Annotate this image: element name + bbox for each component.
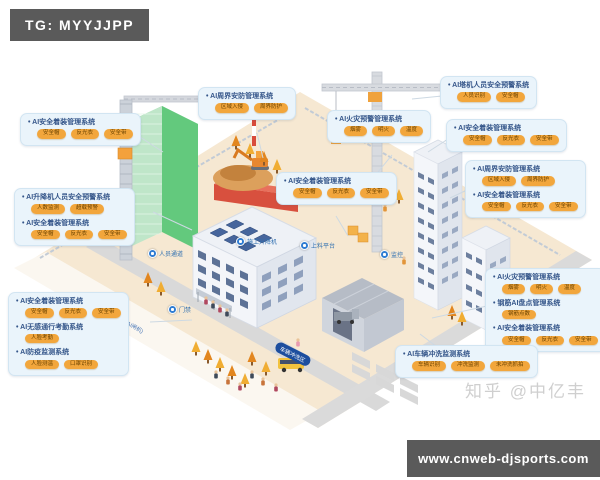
system-item: AI周界安防管理系统 区域入侵 周界防护	[473, 164, 578, 186]
feature-tag: 安全帽	[37, 129, 66, 139]
site-marker: 人员通道	[148, 249, 183, 258]
callout-box: AI周界安防管理系统 区域入侵 周界防护 AI安全着装管理系统 安全帽 反光衣 …	[465, 160, 586, 218]
system-item: AI安全着装管理系统 安全帽 反光衣 安全带	[473, 190, 578, 212]
site-marker: 施工升降机	[236, 237, 277, 246]
site-marker: 监控	[380, 250, 403, 259]
system-item: AI安全着装管理系统 安全帽 反光衣 安全带	[284, 176, 389, 198]
system-item: AI火灾预警管理系统 烟雾 明火 温度	[493, 272, 598, 294]
callout-box: AI安全着装管理系统 安全帽 反光衣 安全带	[20, 113, 141, 146]
marker-label: 人员通道	[159, 249, 183, 258]
feature-tag: 安全带	[530, 135, 559, 145]
feature-tag: 人脸测温	[25, 360, 59, 370]
feature-tag: 反光衣	[327, 188, 356, 198]
feature-tag: 安全帽	[463, 135, 492, 145]
marker-label: 监控	[391, 250, 403, 259]
system-title: AI周界安防管理系统	[473, 164, 578, 175]
callout-box: AI塔机人员安全预警系统 人员识别 安全帽	[440, 76, 537, 109]
system-title: AI安全着装管理系统	[22, 218, 127, 229]
marker-label: 施工升降机	[247, 237, 277, 246]
feature-tag: 反光衣	[65, 230, 94, 240]
feature-tag: 安全带	[104, 129, 133, 139]
system-title: AI无感通行考勤系统	[16, 322, 121, 333]
system-item: AI防疫监测系统 人脸测温 口罩识别	[16, 347, 121, 369]
feature-tag: 车辆识别	[412, 361, 446, 371]
feature-tag: 冲洗监测	[451, 361, 485, 371]
system-title: AI安全着装管理系统	[28, 117, 133, 128]
feature-tag: 反光衣	[536, 336, 565, 346]
feature-tag: 钢筋点数	[502, 310, 536, 320]
callout-box: AI安全着装管理系统 安全帽 反光衣 安全带	[446, 119, 567, 152]
marker-label: 门禁	[179, 305, 191, 314]
feature-tag: 安全带	[92, 308, 121, 318]
system-title: AI防疫监测系统	[16, 347, 121, 358]
footer-url-bar: www.cnweb-djsports.com	[407, 440, 600, 477]
feature-tag: 安全带	[569, 336, 598, 346]
system-title: AI安全着装管理系统	[473, 190, 578, 201]
feature-tag: 反光衣	[497, 135, 526, 145]
site-marker: 上料平台	[300, 241, 335, 250]
feature-tag: 安全带	[549, 202, 578, 212]
system-item: AI周界安防管理系统 区域入侵 周界防护	[206, 91, 288, 113]
feature-tag: 周界防护	[521, 176, 555, 186]
system-title: 钢筋AI盘点管理系统	[493, 298, 598, 309]
feature-tag: 安全帽	[31, 230, 60, 240]
feature-tag: 安全帽	[482, 202, 511, 212]
system-title: AI安全着装管理系统	[16, 296, 121, 307]
camera-marker-icon	[300, 241, 309, 250]
feature-tag: 反光衣	[71, 129, 100, 139]
system-item: AI无感通行考勤系统 人脸考勤	[16, 322, 121, 344]
system-item: AI塔机人员安全预警系统 人员识别 安全帽	[448, 80, 529, 102]
system-item: AI安全着装管理系统 安全帽 反光衣 安全带	[454, 123, 559, 145]
feature-tag: 超载预警	[70, 204, 104, 214]
callout-box: AI火灾预警管理系统 烟雾 明火 温度	[327, 110, 431, 143]
feature-tag: 反光衣	[59, 308, 88, 318]
callout-box: AI车辆冲洗监测系统 车辆识别 冲洗监测 未冲洗抓拍	[395, 345, 538, 378]
feature-tag: 明火	[372, 126, 395, 136]
system-title: AI升降机人员安全预警系统	[22, 192, 127, 203]
feature-tag: 反光衣	[516, 202, 545, 212]
system-title: AI周界安防管理系统	[206, 91, 288, 102]
site-marker: 门禁	[168, 305, 191, 314]
feature-tag: 区域入侵	[482, 176, 516, 186]
callout-box: AI升降机人员安全预警系统 人数监测 超载预警 AI安全着装管理系统 安全帽 反…	[14, 188, 135, 246]
watermark: 知乎 @中亿丰	[465, 377, 586, 402]
system-title: AI火灾预警管理系统	[335, 114, 423, 125]
camera-marker-icon	[380, 250, 389, 259]
feature-tag: 明火	[530, 284, 553, 294]
brand-badge: TG: MYYJJPP	[10, 9, 149, 41]
system-title: AI火灾预警管理系统	[493, 272, 598, 283]
system-item: 钢筋AI盘点管理系统 钢筋点数	[493, 298, 598, 320]
camera-marker-icon	[148, 249, 157, 258]
system-item: AI车辆冲洗监测系统 车辆识别 冲洗监测 未冲洗抓拍	[403, 349, 530, 371]
marker-label: 上料平台	[311, 241, 335, 250]
feature-tag: 温度	[400, 126, 423, 136]
feature-tag: 人员识别	[457, 92, 491, 102]
callout-box: AI安全着装管理系统 安全帽 反光衣 安全带 AI无感通行考勤系统 人脸考勤 A…	[8, 292, 129, 376]
feature-tag: 未冲洗抓拍	[490, 361, 530, 371]
feature-tag: 安全帽	[293, 188, 322, 198]
system-item: AI升降机人员安全预警系统 人数监测 超载预警	[22, 192, 127, 214]
feature-tag: 人数监测	[31, 204, 65, 214]
feature-tag: 安全帽	[25, 308, 54, 318]
callout-box: AI周界安防管理系统 区域入侵 周界防护	[198, 87, 296, 120]
system-item: AI火灾预警管理系统 烟雾 明火 温度	[335, 114, 423, 136]
page: TG: MYYJJPP	[0, 0, 600, 480]
camera-marker-icon	[168, 305, 177, 314]
feature-tag: 口罩识别	[64, 360, 98, 370]
callout-box: AI安全着装管理系统 安全帽 反光衣 安全带	[276, 172, 397, 205]
feature-tag: 烟雾	[502, 284, 525, 294]
system-title: AI塔机人员安全预警系统	[448, 80, 529, 91]
feature-tag: 安全带	[360, 188, 389, 198]
system-title: AI安全着装管理系统	[284, 176, 389, 187]
camera-marker-icon	[236, 237, 245, 246]
system-title: AI车辆冲洗监测系统	[403, 349, 530, 360]
feature-tag: 周界防护	[254, 103, 288, 113]
system-item: AI安全着装管理系统 安全帽 反光衣 安全带	[16, 296, 121, 318]
feature-tag: 温度	[558, 284, 581, 294]
feature-tag: 人脸考勤	[25, 334, 59, 344]
feature-tag: 区域入侵	[215, 103, 249, 113]
system-item: AI安全着装管理系统 安全帽 反光衣 安全带	[22, 218, 127, 240]
feature-tag: 安全带	[98, 230, 127, 240]
feature-tag: 安全帽	[502, 336, 531, 346]
system-title: AI安全着装管理系统	[493, 323, 598, 334]
system-item: AI安全着装管理系统 安全帽 反光衣 安全带	[28, 117, 133, 139]
callout-box: AI火灾预警管理系统 烟雾 明火 温度 钢筋AI盘点管理系统 钢筋点数 AI安全…	[485, 268, 600, 352]
system-item: AI安全着装管理系统 安全帽 反光衣 安全带	[493, 323, 598, 345]
system-title: AI安全着装管理系统	[454, 123, 559, 134]
feature-tag: 烟雾	[344, 126, 367, 136]
feature-tag: 安全帽	[496, 92, 525, 102]
